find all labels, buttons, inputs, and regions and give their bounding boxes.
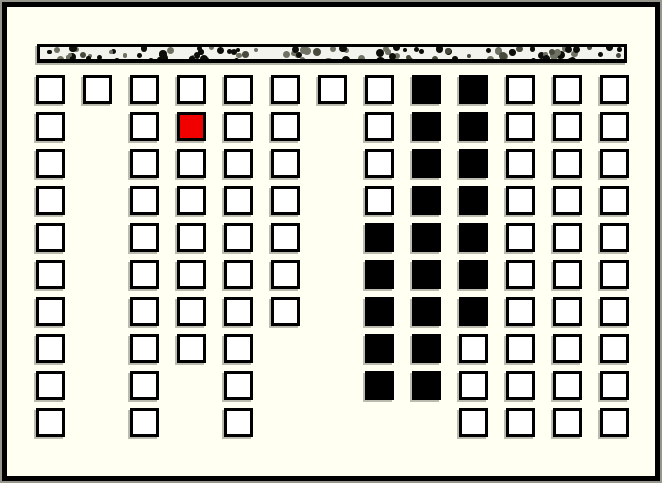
seat-r3-c9[interactable] [412, 149, 441, 178]
seat-r2-c12[interactable] [553, 112, 582, 141]
seat-r5-c13[interactable] [600, 223, 629, 252]
seat-r7-c13[interactable] [600, 297, 629, 326]
seat-r3-c10[interactable] [459, 149, 488, 178]
seat-r3-c5[interactable] [224, 149, 253, 178]
seat-r6-c10[interactable] [459, 260, 488, 289]
seat-r5-c1[interactable] [36, 223, 65, 252]
seat-r7-c4[interactable] [177, 297, 206, 326]
seat-r2-c9[interactable] [412, 112, 441, 141]
seat-r9-c13[interactable] [600, 371, 629, 400]
seat-r10-c12[interactable] [553, 408, 582, 437]
seat-r8-c5[interactable] [224, 334, 253, 363]
seat-r8-c11[interactable] [506, 334, 535, 363]
seat-r8-c10[interactable] [459, 334, 488, 363]
seat-r6-c13[interactable] [600, 260, 629, 289]
seat-r8-c1[interactable] [36, 334, 65, 363]
seat-r1-c6[interactable] [271, 75, 300, 104]
seat-r4-c12[interactable] [553, 186, 582, 215]
seat-r4-c1[interactable] [36, 186, 65, 215]
seat-r4-c8[interactable] [365, 186, 394, 215]
seat-r8-c8[interactable] [365, 334, 394, 363]
seat-r7-c9[interactable] [412, 297, 441, 326]
seat-r6-c6[interactable] [271, 260, 300, 289]
seat-r9-c10[interactable] [459, 371, 488, 400]
seat-r1-c5[interactable] [224, 75, 253, 104]
seat-r3-c1[interactable] [36, 149, 65, 178]
seat-r2-c4[interactable] [177, 112, 206, 141]
seat-r2-c10[interactable] [459, 112, 488, 141]
seat-r10-c10[interactable] [459, 408, 488, 437]
seat-r9-c5[interactable] [224, 371, 253, 400]
seat-r10-c1[interactable] [36, 408, 65, 437]
seat-r1-c13[interactable] [600, 75, 629, 104]
seat-r1-c4[interactable] [177, 75, 206, 104]
seat-r5-c10[interactable] [459, 223, 488, 252]
seat-r8-c9[interactable] [412, 334, 441, 363]
seat-r7-c11[interactable] [506, 297, 535, 326]
seat-r2-c3[interactable] [130, 112, 159, 141]
seat-r7-c12[interactable] [553, 297, 582, 326]
seat-r10-c5[interactable] [224, 408, 253, 437]
seat-r6-c8[interactable] [365, 260, 394, 289]
seat-r6-c11[interactable] [506, 260, 535, 289]
seat-r3-c6[interactable] [271, 149, 300, 178]
seat-r4-c6[interactable] [271, 186, 300, 215]
seat-r10-c3[interactable] [130, 408, 159, 437]
seat-r5-c11[interactable] [506, 223, 535, 252]
seat-r4-c4[interactable] [177, 186, 206, 215]
seat-r2-c8[interactable] [365, 112, 394, 141]
seat-r5-c4[interactable] [177, 223, 206, 252]
seat-r8-c4[interactable] [177, 334, 206, 363]
seat-r5-c3[interactable] [130, 223, 159, 252]
seat-r1-c11[interactable] [506, 75, 535, 104]
seat-r4-c3[interactable] [130, 186, 159, 215]
seat-r1-c8[interactable] [365, 75, 394, 104]
seat-r9-c9[interactable] [412, 371, 441, 400]
seat-r9-c12[interactable] [553, 371, 582, 400]
seat-r7-c6[interactable] [271, 297, 300, 326]
seat-r2-c11[interactable] [506, 112, 535, 141]
seat-r3-c12[interactable] [553, 149, 582, 178]
seat-r2-c5[interactable] [224, 112, 253, 141]
seat-r9-c3[interactable] [130, 371, 159, 400]
seat-r7-c8[interactable] [365, 297, 394, 326]
seat-r1-c1[interactable] [36, 75, 65, 104]
seat-r10-c11[interactable] [506, 408, 535, 437]
seat-r9-c1[interactable] [36, 371, 65, 400]
seat-r1-c7[interactable] [318, 75, 347, 104]
seat-r4-c9[interactable] [412, 186, 441, 215]
seat-r4-c10[interactable] [459, 186, 488, 215]
seat-r4-c13[interactable] [600, 186, 629, 215]
seat-r8-c3[interactable] [130, 334, 159, 363]
seat-r5-c12[interactable] [553, 223, 582, 252]
seat-r5-c9[interactable] [412, 223, 441, 252]
seat-r6-c3[interactable] [130, 260, 159, 289]
seat-r5-c8[interactable] [365, 223, 394, 252]
seat-r2-c6[interactable] [271, 112, 300, 141]
seat-r3-c13[interactable] [600, 149, 629, 178]
seat-r5-c6[interactable] [271, 223, 300, 252]
seat-r3-c11[interactable] [506, 149, 535, 178]
seat-r7-c3[interactable] [130, 297, 159, 326]
seat-r2-c13[interactable] [600, 112, 629, 141]
seat-r6-c1[interactable] [36, 260, 65, 289]
seat-r10-c13[interactable] [600, 408, 629, 437]
seat-map-window [0, 0, 662, 483]
seat-grid [0, 0, 662, 483]
seat-r6-c9[interactable] [412, 260, 441, 289]
seat-r7-c1[interactable] [36, 297, 65, 326]
seat-r3-c4[interactable] [177, 149, 206, 178]
seat-r7-c5[interactable] [224, 297, 253, 326]
seat-r4-c5[interactable] [224, 186, 253, 215]
seat-r1-c3[interactable] [130, 75, 159, 104]
seat-r1-c9[interactable] [412, 75, 441, 104]
seat-r6-c5[interactable] [224, 260, 253, 289]
seat-r1-c10[interactable] [459, 75, 488, 104]
seat-r7-c10[interactable] [459, 297, 488, 326]
seat-r6-c12[interactable] [553, 260, 582, 289]
seat-r2-c1[interactable] [36, 112, 65, 141]
seat-r3-c3[interactable] [130, 149, 159, 178]
seat-r3-c8[interactable] [365, 149, 394, 178]
seat-r5-c5[interactable] [224, 223, 253, 252]
seat-r9-c11[interactable] [506, 371, 535, 400]
seat-r1-c2[interactable] [83, 75, 112, 104]
seat-r8-c13[interactable] [600, 334, 629, 363]
seat-r9-c8[interactable] [365, 371, 394, 400]
seat-r4-c11[interactable] [506, 186, 535, 215]
seat-r8-c12[interactable] [553, 334, 582, 363]
seat-r1-c12[interactable] [553, 75, 582, 104]
seat-r6-c4[interactable] [177, 260, 206, 289]
